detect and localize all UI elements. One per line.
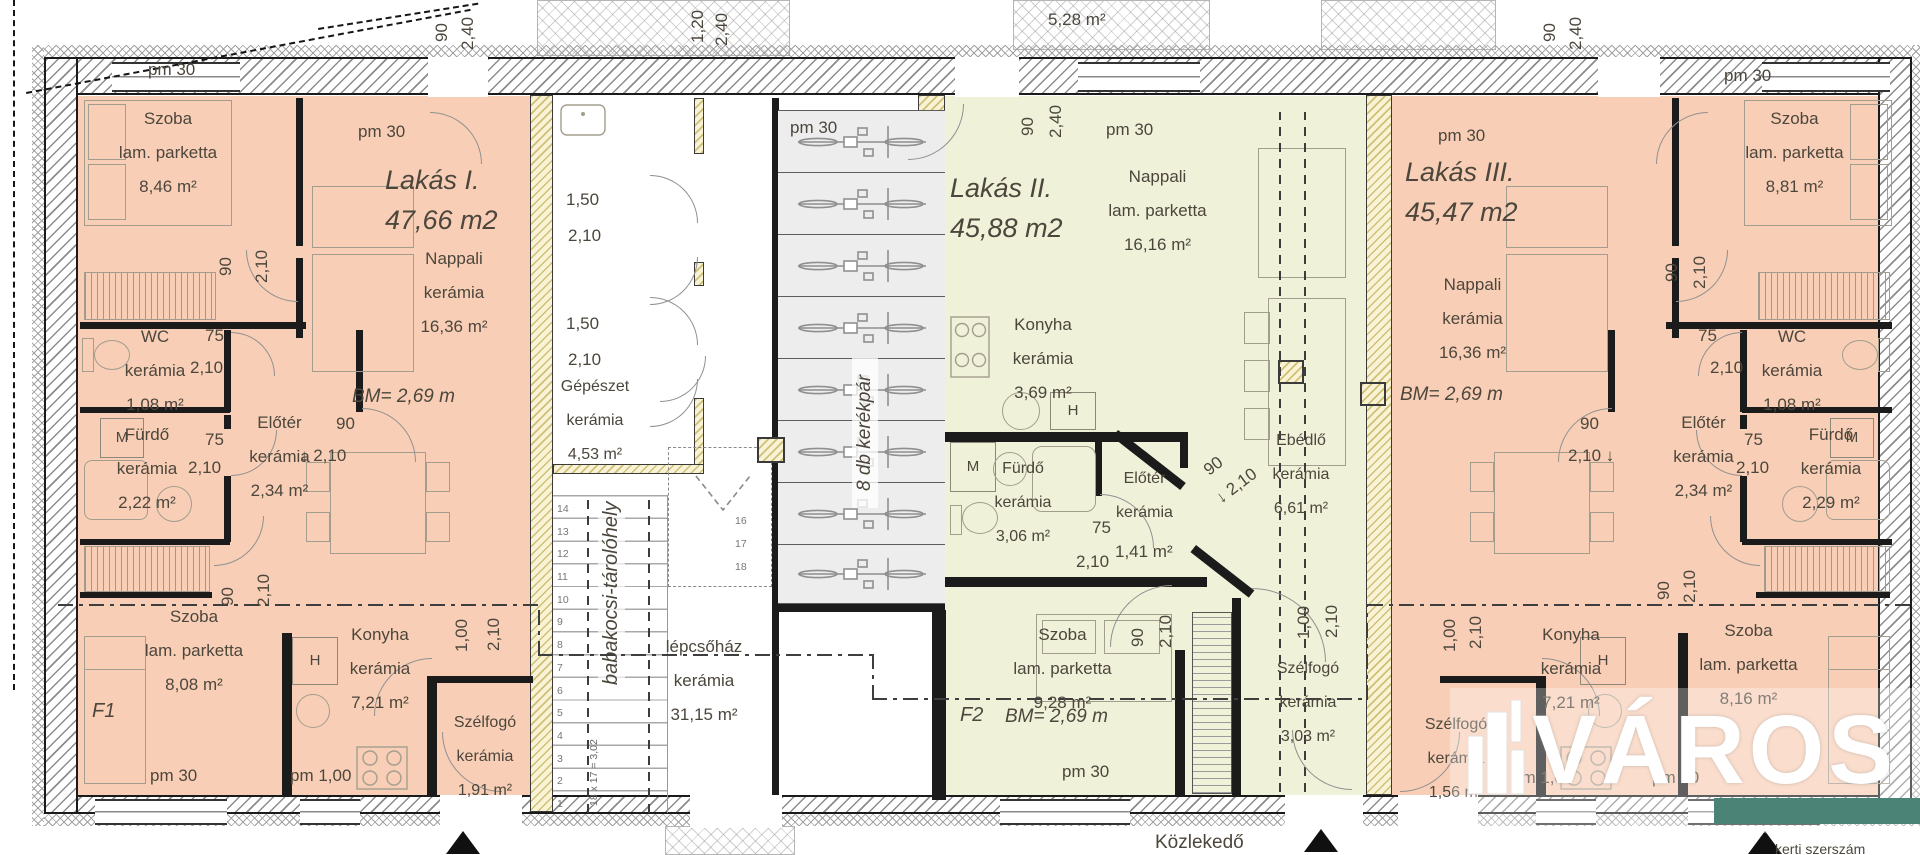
bike-icon <box>792 308 932 348</box>
room-label-l3-szoba-felso: Szobalam. parketta8,81 m² <box>1722 102 1867 204</box>
room-label-l1-szelfogo: Szélfogókerámia1,91 m² <box>440 706 530 808</box>
room-label-lepcsohaz: lépcsőházkerámia31,15 m² <box>648 630 760 732</box>
wall <box>694 98 704 154</box>
room-label-l2-konyha: Konyhakerámia3,69 m² <box>998 308 1088 410</box>
dim-door-height: 2,40 <box>1566 6 1586 60</box>
wardrobe <box>84 272 216 320</box>
dim-door: 1,50 <box>566 314 599 334</box>
bike-icon <box>792 184 932 224</box>
dim-door-width: 90 <box>432 8 452 58</box>
dining-table <box>1494 452 1590 554</box>
door-arc <box>660 356 706 402</box>
column <box>1360 382 1386 406</box>
section-marker-f2: F2 <box>960 704 983 727</box>
dim-door: 2,10 <box>568 226 601 246</box>
chair <box>426 462 450 492</box>
boundary-line <box>13 0 15 690</box>
chair <box>1470 512 1494 542</box>
room-area-l2-eloter: 1,41 m² <box>1115 542 1173 562</box>
stove-icon <box>356 746 408 790</box>
dim-door: 1,50 <box>566 190 599 210</box>
wall <box>224 330 231 412</box>
dim-door: 1,00 <box>1440 610 1460 660</box>
dim-door: 2,10 <box>1690 246 1710 298</box>
dim-door-height: 2,40 <box>1046 94 1066 148</box>
room-label-l2-eloter: Előtérkerámia <box>1102 462 1187 530</box>
chair <box>306 512 330 542</box>
door-opening <box>1598 57 1660 97</box>
dim-door: 90 <box>218 574 238 620</box>
dim-door: 75 <box>205 430 224 450</box>
utility-sink-icon <box>560 104 606 136</box>
dim-door: 2,10 <box>188 458 221 478</box>
bm-height-lakas2: BM= 2,69 m <box>1005 706 1108 728</box>
room-label-l2-nappali: Nappalilam. parketta16,16 m² <box>1090 160 1225 262</box>
toilet-icon <box>82 338 94 372</box>
toilet-icon <box>950 505 962 535</box>
dim-door: 2,10 <box>1680 560 1700 612</box>
dim-door: 90 <box>1128 616 1148 660</box>
dim-door-width: 90 <box>1018 106 1038 148</box>
dim-door: 2,10 <box>1736 458 1769 478</box>
label-kozlekedo: Közlekedő <box>1155 832 1244 854</box>
room-label-l1-nappali: Nappalikerámia16,36 m² <box>398 242 510 344</box>
entry-arrow <box>1304 829 1338 852</box>
wall <box>296 98 303 246</box>
door-opening <box>1285 795 1363 828</box>
dim-door-height: 2,40 <box>458 4 478 62</box>
dim-door: 90 <box>216 244 236 290</box>
stair-step-numbers-lower: 1413121110987654321 <box>557 498 577 816</box>
dim-parapet: pm 30 <box>1438 126 1485 146</box>
pillow <box>1828 636 1890 670</box>
window <box>1078 62 1200 92</box>
dining-table <box>330 452 426 554</box>
dim-door: 2,10 <box>1466 606 1486 658</box>
boundary-line <box>318 3 478 30</box>
dim-door: 1,00 <box>1294 598 1314 646</box>
dim-door: 2,10 <box>1076 552 1109 572</box>
dim-door: 2,10 <box>252 240 272 292</box>
room-label-l2-szoba: Szobalam. parketta9,28 m² <box>1000 618 1125 720</box>
dim-door: ↓ 2,10 <box>300 446 346 466</box>
window <box>1000 799 1130 825</box>
dim-door-height: 2,40 <box>712 2 732 56</box>
bike-count-label: 8 db kerékpár <box>852 358 878 508</box>
chair <box>426 512 450 542</box>
porch <box>665 826 795 855</box>
dim-porch-area: 5,28 m² <box>1048 10 1106 30</box>
dim-door: 90 <box>336 414 355 434</box>
wall <box>427 676 533 683</box>
room-label-l3-eloter: Előtérkerámia2,34 m² <box>1646 406 1761 508</box>
bm-height-lakas3: BM= 2,69 m <box>1400 384 1503 406</box>
dim-parapet: pm 30 <box>1106 120 1153 140</box>
column <box>1278 360 1304 384</box>
chair <box>1244 312 1270 344</box>
section-line <box>58 604 540 606</box>
dim-door: 90 <box>1662 250 1682 296</box>
dim-door: 75 <box>1744 430 1763 450</box>
section-line <box>1368 604 1914 606</box>
sofa <box>1506 186 1608 248</box>
dim-parapet: pm 1,00 <box>290 766 351 786</box>
wall <box>1756 592 1890 598</box>
stove-icon <box>950 316 990 378</box>
dim-parapet: pm 30 <box>358 122 405 142</box>
dim-door-width: 90 <box>1540 10 1560 56</box>
wall <box>1232 598 1241 795</box>
porch <box>1013 0 1210 50</box>
section-line <box>872 654 874 700</box>
bike-icon <box>792 554 932 594</box>
dim-door: 2,10 <box>254 564 274 616</box>
wall <box>1608 330 1615 412</box>
window <box>300 799 360 825</box>
dim-door: 2,10 <box>190 358 223 378</box>
dim-door: 2,10 ↓ <box>1568 446 1614 466</box>
dim-parapet: pm 30 <box>1724 66 1771 86</box>
chair <box>1470 462 1494 492</box>
insulation <box>44 45 1912 57</box>
logo-building-icon <box>1466 700 1526 795</box>
dim-parapet: pm 30 <box>1062 762 1109 782</box>
dim-door: 75 <box>205 326 224 346</box>
entry-arrow <box>446 831 480 854</box>
room-label-l1-szoba-felso: Szobalam. parketta8,46 m² <box>98 102 238 204</box>
wall <box>945 432 1185 442</box>
dim-door: 2,10 <box>484 608 504 660</box>
dim-door: 2,10 <box>1322 596 1342 646</box>
chair <box>1590 512 1614 542</box>
wardrobe <box>84 546 210 592</box>
room-label-l2-ebedlo: Ebédlőkerámia6,61 m² <box>1256 424 1346 526</box>
dim-door: 2,10 <box>1710 358 1743 378</box>
apartment-title-lakas3: Lakás III.45,47 m2 <box>1405 152 1518 232</box>
wall <box>1366 95 1392 795</box>
dim-door: 90 <box>1654 568 1674 614</box>
wardrobe <box>1758 272 1890 320</box>
door-opening <box>690 795 782 828</box>
section-marker-f1: F1 <box>92 700 115 723</box>
stair-direction-arrow <box>688 468 758 518</box>
dim-door: 75 <box>1698 326 1717 346</box>
section-line <box>1366 604 1368 700</box>
door-arc <box>650 297 698 345</box>
dim-door: 2,10 <box>1156 606 1176 656</box>
section-line <box>538 604 540 656</box>
room-label-l2-szelfogo: Szélfogókerámia3,03 m² <box>1258 652 1358 754</box>
stroller-storage-label: babakocsi-tárolóhely <box>598 498 625 688</box>
window <box>1762 62 1890 92</box>
wall-outer-left <box>44 57 78 814</box>
label-kerti-szerszam: kerti szerszám <box>1775 841 1865 855</box>
chair <box>1590 462 1614 492</box>
insulation <box>32 45 44 826</box>
chair <box>1244 360 1270 392</box>
room-label-l1-furdo: Fürdőkerámia2,22 m² <box>92 418 202 520</box>
dim-parapet: pm 30 <box>790 118 837 138</box>
exterior-steps <box>1192 612 1232 794</box>
room-label-l3-furdo: Fürdőkerámia2,29 m² <box>1776 418 1886 520</box>
dim-door-width: 1,20 <box>688 2 708 50</box>
dim-door: 1,00 <box>452 610 472 660</box>
wall <box>1175 650 1185 795</box>
door-opening <box>955 57 1019 97</box>
wall <box>1742 539 1892 545</box>
stair-note: 18 x 17 = 3,02 <box>588 738 600 808</box>
wall <box>932 610 946 800</box>
dim-door: 75 <box>1092 518 1111 538</box>
sofa <box>1258 148 1346 278</box>
wall <box>80 539 230 545</box>
wall <box>80 592 212 598</box>
floor-plan: 1413121110987654321 161718 18 x 17 = 3,0… <box>0 0 1920 855</box>
stair-step-numbers-upper: 161718 <box>735 510 755 580</box>
door-opening <box>428 57 488 97</box>
window <box>95 799 227 825</box>
wall <box>778 604 945 612</box>
dim-parapet: pm 30 <box>150 766 197 786</box>
room-label-gepeszet: Gépészetkerámia4,53 m² <box>546 370 644 472</box>
logo-band <box>1714 798 1920 824</box>
apartment-title-lakas2: Lakás II.45,88 m2 <box>950 168 1063 248</box>
column <box>757 437 785 463</box>
room-label-l2-furdo: Fürdőkerámia3,06 m² <box>978 452 1068 554</box>
bm-height-lakas1: BM= 2,69 m <box>352 386 455 408</box>
toilet-icon <box>1878 338 1890 372</box>
dim-door: 90 <box>1580 414 1599 434</box>
dim-parapet: pm 30 <box>148 60 195 80</box>
dim-door: 2,10 <box>568 350 601 370</box>
apartment-title-lakas1: Lakás I.47,66 m2 <box>385 160 498 240</box>
room-label-l3-nappali: Nappalikerámia16,36 m² <box>1415 268 1530 370</box>
room-label-l1-konyha: Konyhakerámia7,21 m² <box>325 618 435 720</box>
bike-icon <box>792 246 932 286</box>
door-arc <box>650 175 698 223</box>
porch <box>1321 0 1496 50</box>
logo-text: VÁROS <box>1532 700 1897 800</box>
wardrobe <box>1764 546 1890 592</box>
wall <box>1095 442 1102 496</box>
